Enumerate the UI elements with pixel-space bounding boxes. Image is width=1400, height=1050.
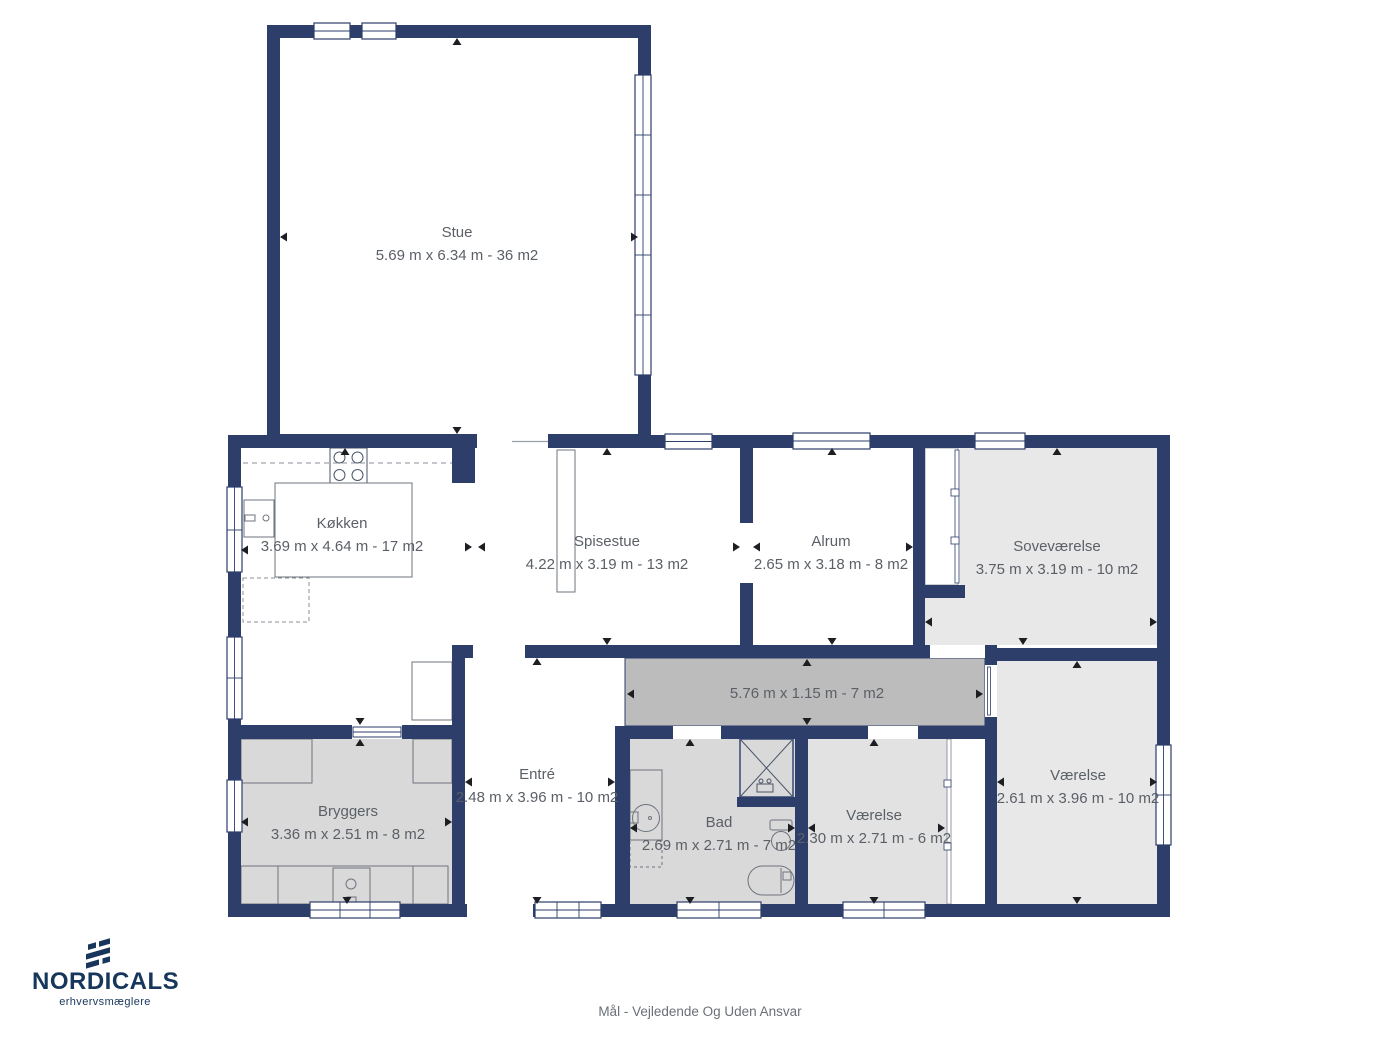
room-dims: 3.36 m x 2.51 m - 8 m2 [271, 824, 425, 847]
vaerelse-small-door [868, 726, 918, 739]
room-dims: 3.69 m x 4.64 m - 17 m2 [261, 536, 424, 559]
room-name: Bad [642, 812, 796, 835]
room-dims: 2.48 m x 3.96 m - 10 m2 [456, 787, 619, 810]
room-dims: 4.22 m x 3.19 m - 13 m2 [526, 554, 689, 577]
window [227, 487, 242, 572]
window [843, 902, 925, 918]
room-label-spisestue: Spisestue 4.22 m x 3.19 m - 13 m2 [526, 531, 689, 576]
room-name: Soveværelse [976, 536, 1139, 559]
room-name: Køkken [261, 513, 424, 536]
floor-plan-drawing [0, 0, 1400, 1050]
room-name: Værelse [797, 805, 951, 828]
window [535, 902, 601, 918]
bad-door [673, 726, 721, 739]
room-dims: 2.65 m x 3.18 m - 8 m2 [754, 554, 908, 577]
window [793, 433, 870, 449]
room-name: Spisestue [526, 531, 689, 554]
window [665, 434, 712, 449]
room-label-alrum: Alrum 2.65 m x 3.18 m - 8 m2 [754, 531, 908, 576]
room-name: Alrum [754, 531, 908, 554]
window [310, 902, 400, 918]
vaerelse-right-door [985, 665, 997, 717]
sovevaerelse-door [930, 645, 985, 658]
stove-icon [330, 448, 367, 483]
sovevaerelse-closet [925, 448, 959, 585]
front-door [467, 904, 533, 917]
window [975, 433, 1025, 449]
room-fill-sovevaerelse-strip [925, 598, 1157, 645]
room-label-kokken: Køkken 3.69 m x 4.64 m - 17 m2 [261, 513, 424, 558]
room-dims: 2.61 m x 3.96 m - 10 m2 [997, 788, 1160, 811]
room-dims: 5.69 m x 6.34 m - 36 m2 [376, 245, 539, 268]
room-name: Stue [376, 222, 539, 245]
window [677, 902, 761, 918]
room-name: Entré [456, 764, 619, 787]
room-name: Bryggers [271, 801, 425, 824]
room-label-corridor: 5.76 m x 1.15 m - 7 m2 [730, 683, 884, 706]
window [635, 75, 651, 375]
room-label-bad: Bad 2.69 m x 2.71 m - 7 m2 [642, 812, 796, 857]
window [314, 23, 350, 39]
floor-plan-page: Stue 5.69 m x 6.34 m - 36 m2 Køkken 3.69… [0, 0, 1400, 1050]
room-dims: 2.69 m x 2.71 m - 7 m2 [642, 835, 796, 858]
room-label-entre: Entré 2.48 m x 3.96 m - 10 m2 [456, 764, 619, 809]
room-dims: 2.30 m x 2.71 m - 6 m2 [797, 828, 951, 851]
kitchen-tall-cabinet [412, 662, 452, 720]
room-dims: 3.75 m x 3.19 m - 10 m2 [976, 559, 1139, 582]
room-name: Værelse [997, 765, 1160, 788]
logo-wordmark: NORDICALS [32, 968, 178, 996]
entre-door [473, 645, 525, 658]
room-label-bryggers: Bryggers 3.36 m x 2.51 m - 8 m2 [271, 801, 425, 846]
room-label-vaerelse-small: Værelse 2.30 m x 2.71 m - 6 m2 [797, 805, 951, 850]
room-label-sovevaerelse: Soveværelse 3.75 m x 3.19 m - 10 m2 [976, 536, 1139, 581]
room-dims: 5.76 m x 1.15 m - 7 m2 [730, 683, 884, 706]
bryggers-window-inner [352, 725, 402, 739]
window [362, 23, 396, 39]
window [227, 637, 242, 719]
disclaimer-text: Mål - Vejledende Og Uden Ansvar [0, 1004, 1400, 1019]
room-label-stue: Stue 5.69 m x 6.34 m - 36 m2 [376, 222, 539, 267]
window [227, 780, 242, 832]
room-label-vaerelse-right: Værelse 2.61 m x 3.96 m - 10 m2 [997, 765, 1160, 810]
kitchen-cabinet-dashed [243, 578, 309, 622]
